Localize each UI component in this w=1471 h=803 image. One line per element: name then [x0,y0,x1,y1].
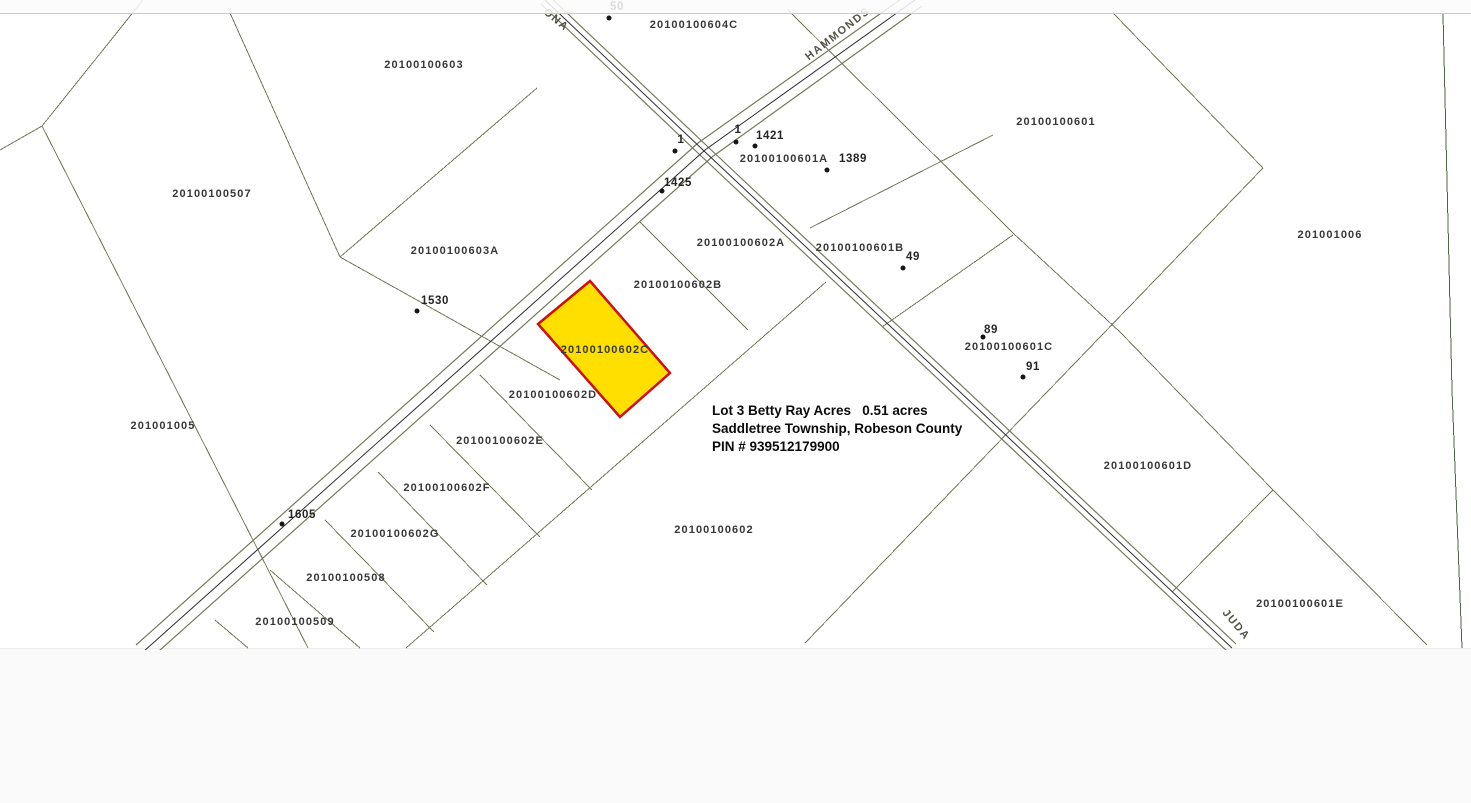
parcel-label-20100100602d: 20100100602D [509,389,597,401]
parcel-label-20100100602f: 20100100602F [403,482,490,494]
parcel-label-20100100602c: 20100100602C [561,344,649,356]
parcel-label-20100100603: 20100100603 [384,59,463,71]
address-label: 1421 [756,130,784,142]
annotation-line: Lot 3 Betty Ray Acres 0.51 acres [712,402,962,420]
parcel-label-20100100602g: 20100100602G [350,528,439,540]
parcel-label-20100100601c: 20100100601C [965,341,1053,353]
address-label: 91 [1026,361,1040,373]
address-dot [415,309,420,314]
results-panel: ©2025 Hive MLS Hide 1 Results [0,648,1471,803]
parcel-label-20100100604c: 20100100604C [650,19,738,31]
annotation-line: Saddletree Township, Robeson County [712,420,962,438]
parcel-label-20100100601a: 20100100601A [740,153,828,165]
address-label: 1425 [664,177,692,189]
parcel-annotation: Lot 3 Betty Ray Acres 0.51 acresSaddletr… [712,402,962,456]
address-dot [901,266,906,271]
parcel-label-20100100508: 20100100508 [306,572,385,584]
parcel-label-20100100509: 20100100509 [255,616,334,628]
parcel-label-20100100602e: 20100100602E [456,435,544,447]
parcel-label-20100100601: 20100100601 [1016,116,1095,128]
address-label: 1605 [288,509,316,521]
parcel-label-20100100603a: 20100100603A [411,245,499,257]
address-label: 1 [735,124,742,136]
address-dot [673,149,678,154]
address-label: 1389 [839,153,867,165]
address-label: 1 [678,134,685,146]
address-dot [1021,375,1026,380]
address-label: 49 [906,251,920,263]
address-dot [280,522,285,527]
parcel-label-20100100601b: 20100100601B [816,242,904,254]
road-casings [136,0,1236,650]
address-dot [981,335,986,340]
parcel-label-201001006: 201001006 [1298,229,1363,241]
parcel-label-201001005: 201001005 [131,420,196,432]
address-dot [825,168,830,173]
top-toolbar-edge [0,0,1471,14]
address-label: 1530 [421,295,449,307]
parcel-label-20100100602: 20100100602 [674,524,753,536]
parcel-label-20100100602a: 20100100602A [697,237,785,249]
address-dot [734,140,739,145]
address-dot [660,189,665,194]
annotation-line: PIN # 939512179900 [712,438,962,456]
road-centerlines [143,0,1232,650]
parcel-label-20100100601d: 20100100601D [1104,460,1192,472]
parcel-boundary-lines [0,0,1462,648]
address-dot [607,16,612,21]
parcel-label-20100100507: 20100100507 [172,188,251,200]
address-dot [753,144,758,149]
parcel-label-20100100601e: 20100100601E [1256,598,1344,610]
address-label: 89 [984,324,998,336]
parcel-map-app: 20100100604C2010010060320100100601201001… [0,0,1471,803]
parcel-label-20100100602b: 20100100602B [634,279,722,291]
parcel-map[interactable]: 20100100604C2010010060320100100601201001… [0,0,1471,650]
